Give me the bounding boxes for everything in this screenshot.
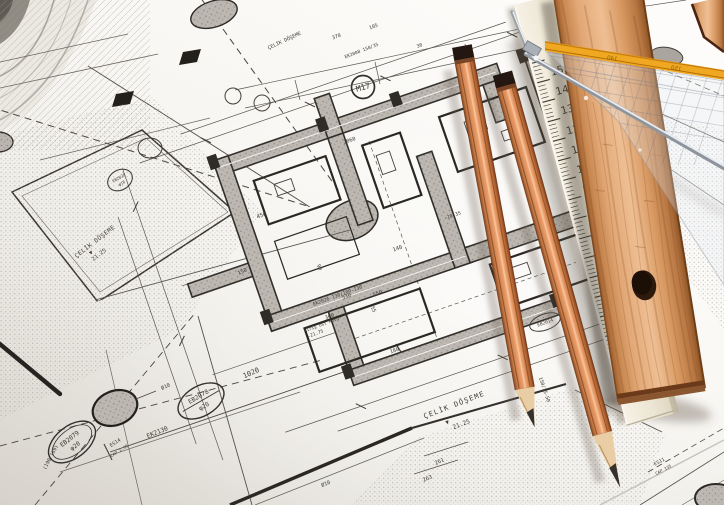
vignette-overlay (0, 0, 724, 505)
photo-canvas: M17 EB2028 φ16 EB2079 φ20 EB2078 φ20 EB2… (0, 0, 724, 505)
blueprint-photo: M17 EB2028 φ16 EB2079 φ20 EB2078 φ20 EB2… (0, 0, 724, 505)
